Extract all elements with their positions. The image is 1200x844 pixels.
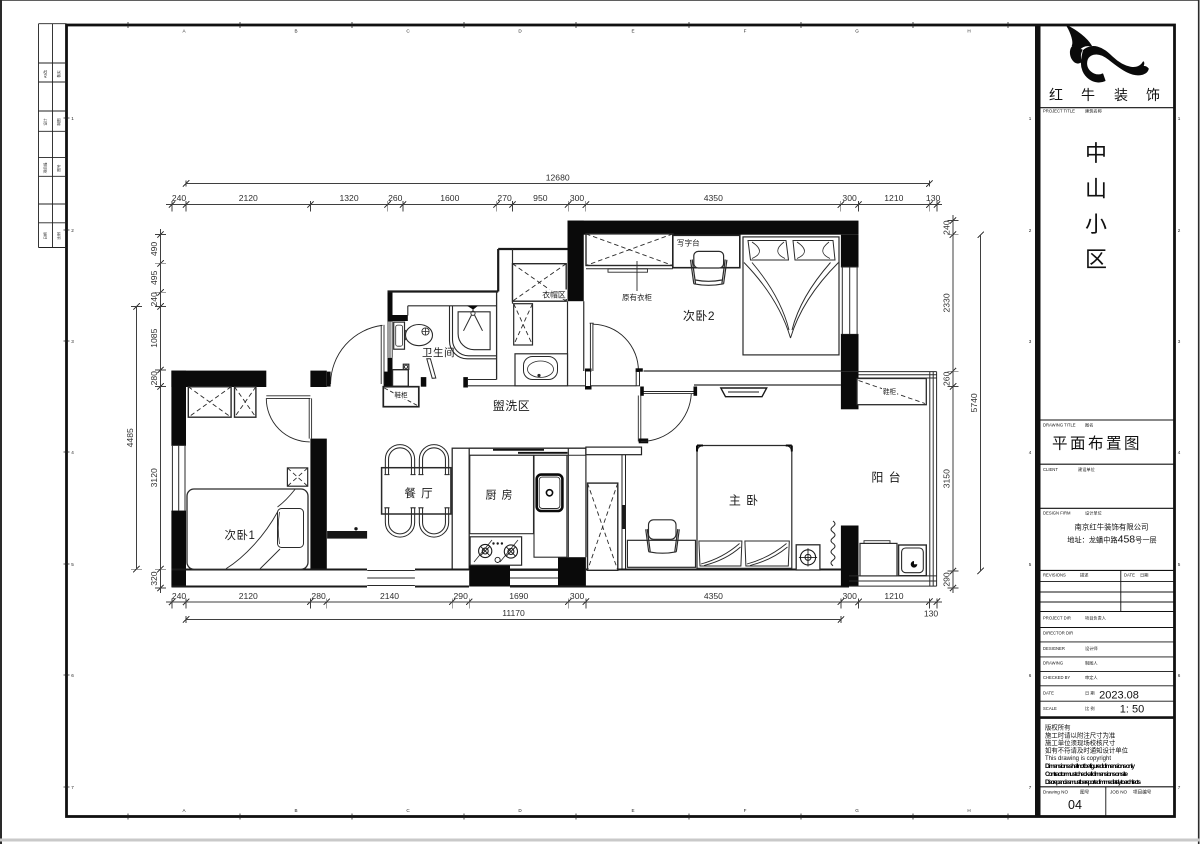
svg-text:设计: 设计 <box>43 118 48 126</box>
svg-text:描述: 描述 <box>1080 572 1089 579</box>
svg-text:130: 130 <box>926 193 941 203</box>
svg-text:版权所有: 版权所有 <box>1045 723 1071 732</box>
svg-text:DATE: DATE <box>1043 691 1054 696</box>
svg-text:E: E <box>631 29 634 34</box>
svg-text:240: 240 <box>149 292 159 307</box>
svg-text:7: 7 <box>71 785 74 790</box>
svg-text:3150: 3150 <box>941 469 951 488</box>
svg-text:300: 300 <box>842 193 857 203</box>
svg-text:950: 950 <box>533 193 548 203</box>
svg-text:H: H <box>967 808 970 813</box>
svg-text:南京红牛装饰有限公司: 南京红牛装饰有限公司 <box>1075 523 1149 532</box>
svg-text:300: 300 <box>570 193 585 203</box>
svg-text:小: 小 <box>1085 212 1107 237</box>
svg-text:山: 山 <box>1085 177 1107 202</box>
svg-text:4: 4 <box>1178 450 1181 455</box>
svg-text:300: 300 <box>843 591 858 601</box>
svg-text:REVISIONS: REVISIONS <box>1043 573 1066 578</box>
svg-text:F: F <box>744 29 747 34</box>
svg-text:270: 270 <box>497 193 512 203</box>
svg-text:3: 3 <box>1029 339 1032 344</box>
svg-text:DESIGN FIRM: DESIGN FIRM <box>1043 511 1071 516</box>
svg-text:平面布置图: 平面布置图 <box>1052 435 1142 453</box>
svg-text:4: 4 <box>1029 450 1032 455</box>
svg-text:施工单位须现场校核尺寸: 施工单位须现场校核尺寸 <box>1045 738 1116 747</box>
svg-text:DRAWING TITLE: DRAWING TITLE <box>1043 423 1076 428</box>
svg-text:5: 5 <box>1029 562 1032 567</box>
svg-text:PROJECT TITLE: PROJECT TITLE <box>1043 109 1075 114</box>
svg-text:280: 280 <box>311 591 326 601</box>
svg-text:2330: 2330 <box>941 293 951 312</box>
svg-text:衣帽区: 衣帽区 <box>542 290 566 300</box>
svg-text:6: 6 <box>1029 673 1032 678</box>
svg-text:次卧2: 次卧2 <box>683 309 715 323</box>
svg-text:Contractor must check all dime: Contractor must check all dimensions on … <box>1045 771 1128 778</box>
svg-text:5: 5 <box>1178 562 1181 567</box>
svg-text:Dimensions shall not be figure: Dimensions shall not be figured dimensio… <box>1045 763 1135 770</box>
svg-text:厨 房: 厨 房 <box>485 489 513 502</box>
svg-text:中: 中 <box>1085 141 1107 166</box>
svg-text:审定人: 审定人 <box>1085 674 1098 681</box>
svg-text:图名: 图名 <box>1085 422 1093 429</box>
svg-text:320: 320 <box>149 571 159 586</box>
svg-text:280: 280 <box>149 371 159 386</box>
svg-text:如有不符请及时通知设计单位: 如有不符请及时通知设计单位 <box>1045 746 1129 755</box>
svg-text:鞋柜: 鞋柜 <box>394 390 408 399</box>
svg-text:B: B <box>294 29 297 34</box>
svg-text:项目负责人: 项目负责人 <box>1085 615 1107 622</box>
svg-text:DIRECTOR DIR: DIRECTOR DIR <box>1043 631 1073 636</box>
svg-text:饰: 饰 <box>1146 87 1160 103</box>
svg-text:鞋柜: 鞋柜 <box>883 387 897 396</box>
svg-text:比例: 比例 <box>56 232 61 240</box>
svg-text:A3改: A3改 <box>43 70 48 78</box>
svg-text:核实: 核实 <box>56 70 61 78</box>
svg-text:图号: 图号 <box>56 164 61 172</box>
svg-text:4350: 4350 <box>704 591 723 601</box>
svg-text:DRAWING: DRAWING <box>1043 661 1063 666</box>
svg-text:1: 50: 1: 50 <box>1120 704 1144 716</box>
svg-text:JOB NO: JOB NO <box>1110 790 1128 795</box>
svg-text:项目编: 项目编 <box>43 162 48 173</box>
svg-text:日期: 日期 <box>43 232 48 240</box>
svg-text:G: G <box>855 29 859 34</box>
svg-text:290: 290 <box>454 591 469 601</box>
svg-text:制图人: 制图人 <box>1085 660 1098 667</box>
svg-text:495: 495 <box>149 270 159 285</box>
svg-text:比 例: 比 例 <box>1085 705 1095 712</box>
svg-text:装: 装 <box>1114 87 1128 103</box>
svg-text:红: 红 <box>1049 87 1063 103</box>
svg-text:E: E <box>631 808 634 813</box>
svg-text:4: 4 <box>71 450 74 455</box>
svg-text:PROJECT DIR: PROJECT DIR <box>1043 616 1071 621</box>
svg-text:3120: 3120 <box>149 468 159 487</box>
svg-text:写字台: 写字台 <box>677 237 700 247</box>
svg-text:牛: 牛 <box>1081 87 1095 103</box>
svg-text:主 卧: 主 卧 <box>729 494 759 508</box>
svg-text:240: 240 <box>941 220 951 235</box>
svg-text:1320: 1320 <box>339 193 358 203</box>
svg-text:7: 7 <box>1029 785 1032 790</box>
svg-text:地址：龙蟠中路458号一层: 地址：龙蟠中路458号一层 <box>1067 534 1156 546</box>
svg-text:1210: 1210 <box>884 193 903 203</box>
svg-text:4485: 4485 <box>125 428 135 447</box>
svg-text:5: 5 <box>71 562 74 567</box>
svg-text:项目编号: 项目编号 <box>1133 789 1152 796</box>
svg-text:卫生间: 卫生间 <box>422 346 455 359</box>
svg-text:This drawing is copyright: This drawing is copyright <box>1045 756 1111 762</box>
svg-text:6: 6 <box>1178 673 1181 678</box>
svg-text:盥洗区: 盥洗区 <box>493 399 531 413</box>
svg-text:施工时请以附注尺寸为准: 施工时请以附注尺寸为准 <box>1045 731 1116 740</box>
svg-text:2: 2 <box>1178 228 1181 233</box>
svg-text:Discrepancies must be reported: Discrepancies must be reported immediate… <box>1045 779 1141 786</box>
svg-text:设计师: 设计师 <box>1085 645 1098 652</box>
svg-text:建筑名称: 建筑名称 <box>1085 108 1102 115</box>
svg-text:2120: 2120 <box>239 591 258 601</box>
svg-text:SCALE: SCALE <box>1043 706 1057 711</box>
svg-text:130: 130 <box>924 609 939 619</box>
svg-text:1: 1 <box>71 116 74 121</box>
svg-text:240: 240 <box>172 591 187 601</box>
svg-text:7: 7 <box>1178 785 1181 790</box>
svg-text:区: 区 <box>1085 247 1107 272</box>
svg-text:CHECKED BY: CHECKED BY <box>1043 675 1070 680</box>
svg-text:1: 1 <box>1178 116 1181 121</box>
svg-text:3: 3 <box>71 339 74 344</box>
svg-text:G: G <box>855 808 859 813</box>
svg-text:次卧1: 次卧1 <box>225 528 256 542</box>
svg-text:H: H <box>967 29 970 34</box>
svg-text:2: 2 <box>1029 228 1032 233</box>
svg-text:2140: 2140 <box>380 591 399 601</box>
svg-text:300: 300 <box>570 591 585 601</box>
svg-text:490: 490 <box>149 242 159 257</box>
svg-text:1600: 1600 <box>440 193 459 203</box>
svg-text:12680: 12680 <box>546 173 570 183</box>
svg-text:餐 厅: 餐 厅 <box>404 486 433 500</box>
svg-text:阳 台: 阳 台 <box>871 470 901 485</box>
svg-text:04: 04 <box>1068 798 1082 812</box>
svg-text:Drawing NO: Drawing NO <box>1043 790 1068 795</box>
svg-text:5740: 5740 <box>969 393 979 412</box>
svg-text:4350: 4350 <box>704 193 723 203</box>
svg-text:CLIENT: CLIENT <box>1043 467 1058 472</box>
svg-text:260: 260 <box>941 371 951 386</box>
svg-text:1: 1 <box>1029 116 1032 121</box>
svg-text:240: 240 <box>172 193 187 203</box>
svg-text:3: 3 <box>1178 339 1181 344</box>
svg-text:原有衣柜: 原有衣柜 <box>622 292 652 302</box>
svg-text:B: B <box>294 808 297 813</box>
svg-text:2023.08: 2023.08 <box>1099 690 1139 702</box>
svg-text:DESIGNER: DESIGNER <box>1043 646 1065 651</box>
svg-text:290: 290 <box>941 572 951 587</box>
svg-text:制图: 制图 <box>56 118 61 126</box>
svg-text:建设单位: 建设单位 <box>1078 466 1095 473</box>
svg-text:1085: 1085 <box>149 328 159 347</box>
svg-text:1210: 1210 <box>884 591 903 601</box>
svg-text:260: 260 <box>388 193 403 203</box>
svg-text:11170: 11170 <box>502 608 525 618</box>
svg-text:设计单位: 设计单位 <box>1085 510 1102 517</box>
svg-text:2120: 2120 <box>239 193 258 203</box>
svg-text:F: F <box>744 808 747 813</box>
svg-text:1690: 1690 <box>509 591 528 601</box>
svg-text:6: 6 <box>71 673 74 678</box>
svg-text:2: 2 <box>71 228 74 233</box>
svg-text:DATE: DATE <box>1124 573 1135 578</box>
